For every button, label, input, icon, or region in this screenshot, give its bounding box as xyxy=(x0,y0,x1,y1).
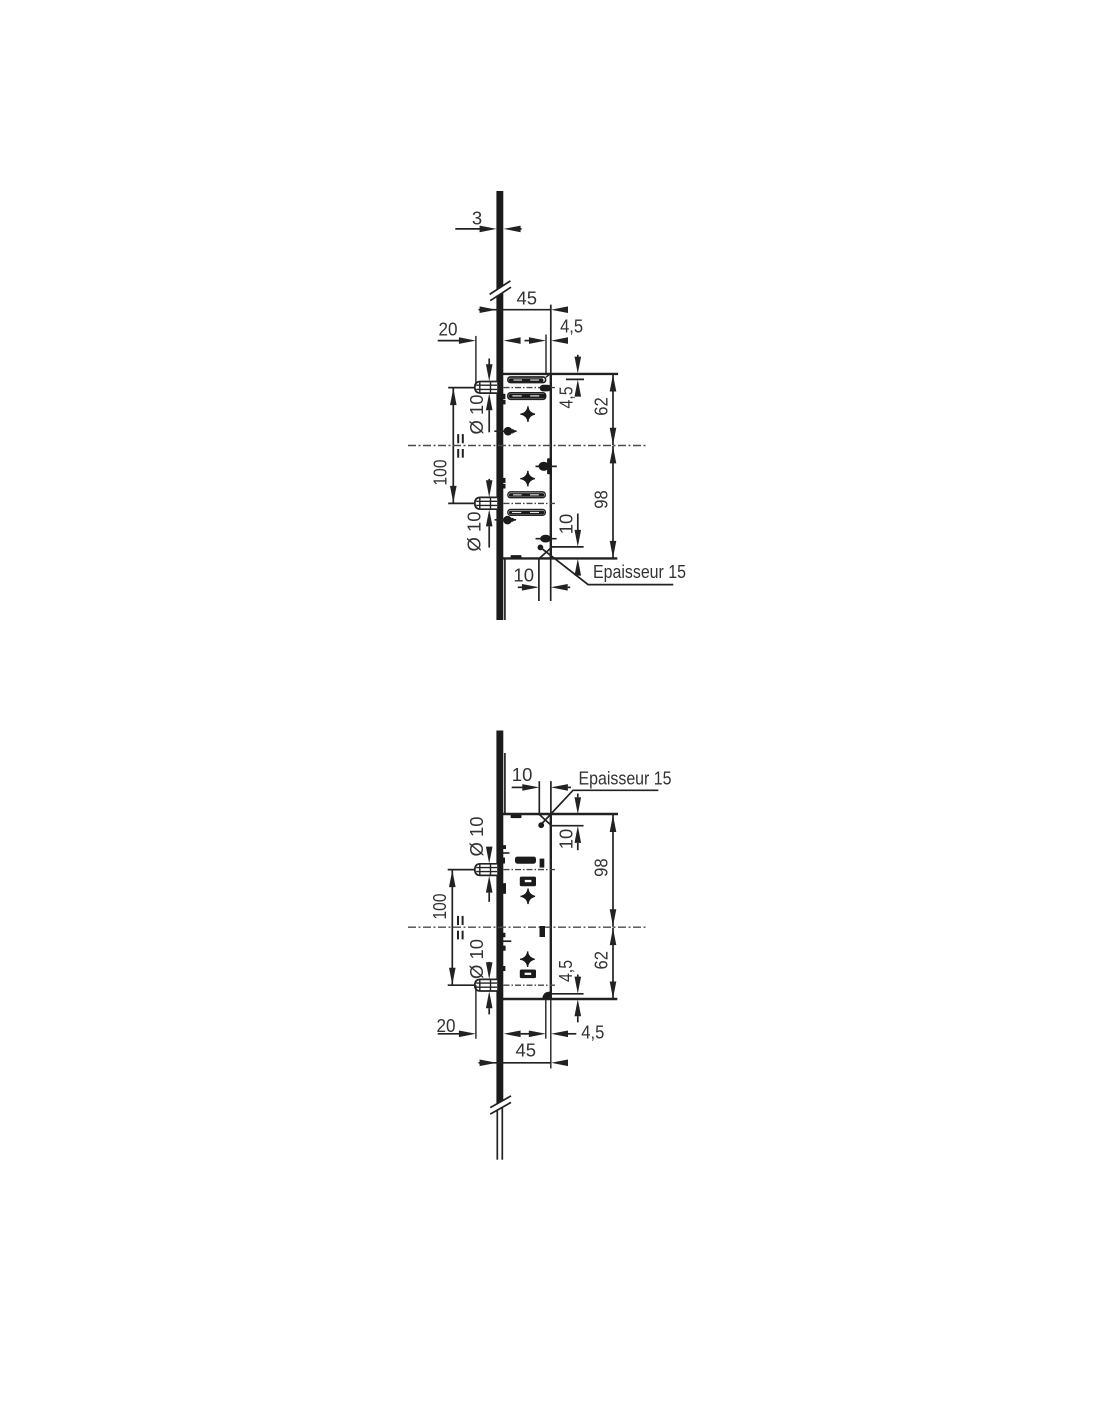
svg-text:100: 100 xyxy=(429,460,450,486)
svg-text:4,5: 4,5 xyxy=(555,960,576,982)
svg-text:3: 3 xyxy=(472,208,482,229)
svg-text:Ø 10: Ø 10 xyxy=(463,511,484,551)
svg-text:Epaisseur 15: Epaisseur 15 xyxy=(579,767,672,788)
svg-text:Epaisseur 15: Epaisseur 15 xyxy=(593,561,686,582)
svg-text:Ø 10: Ø 10 xyxy=(466,939,487,979)
svg-text:4,5: 4,5 xyxy=(560,315,583,336)
svg-text:45: 45 xyxy=(517,287,538,308)
svg-text:62: 62 xyxy=(590,397,611,416)
svg-text:10: 10 xyxy=(555,829,576,850)
svg-text:10: 10 xyxy=(555,514,576,535)
svg-text:10: 10 xyxy=(512,764,533,785)
svg-text:4,5: 4,5 xyxy=(555,387,576,409)
svg-text:Ø 10: Ø 10 xyxy=(466,394,487,434)
svg-text:98: 98 xyxy=(590,490,611,509)
svg-text:100: 100 xyxy=(429,894,450,920)
svg-text:62: 62 xyxy=(590,951,611,970)
svg-text:20: 20 xyxy=(439,319,458,340)
svg-text:20: 20 xyxy=(437,1015,456,1036)
svg-text:45: 45 xyxy=(516,1039,537,1060)
svg-text:10: 10 xyxy=(513,564,534,585)
svg-text:Ø 10: Ø 10 xyxy=(466,816,487,856)
svg-text:98: 98 xyxy=(590,858,611,877)
svg-text:4,5: 4,5 xyxy=(581,1021,604,1042)
